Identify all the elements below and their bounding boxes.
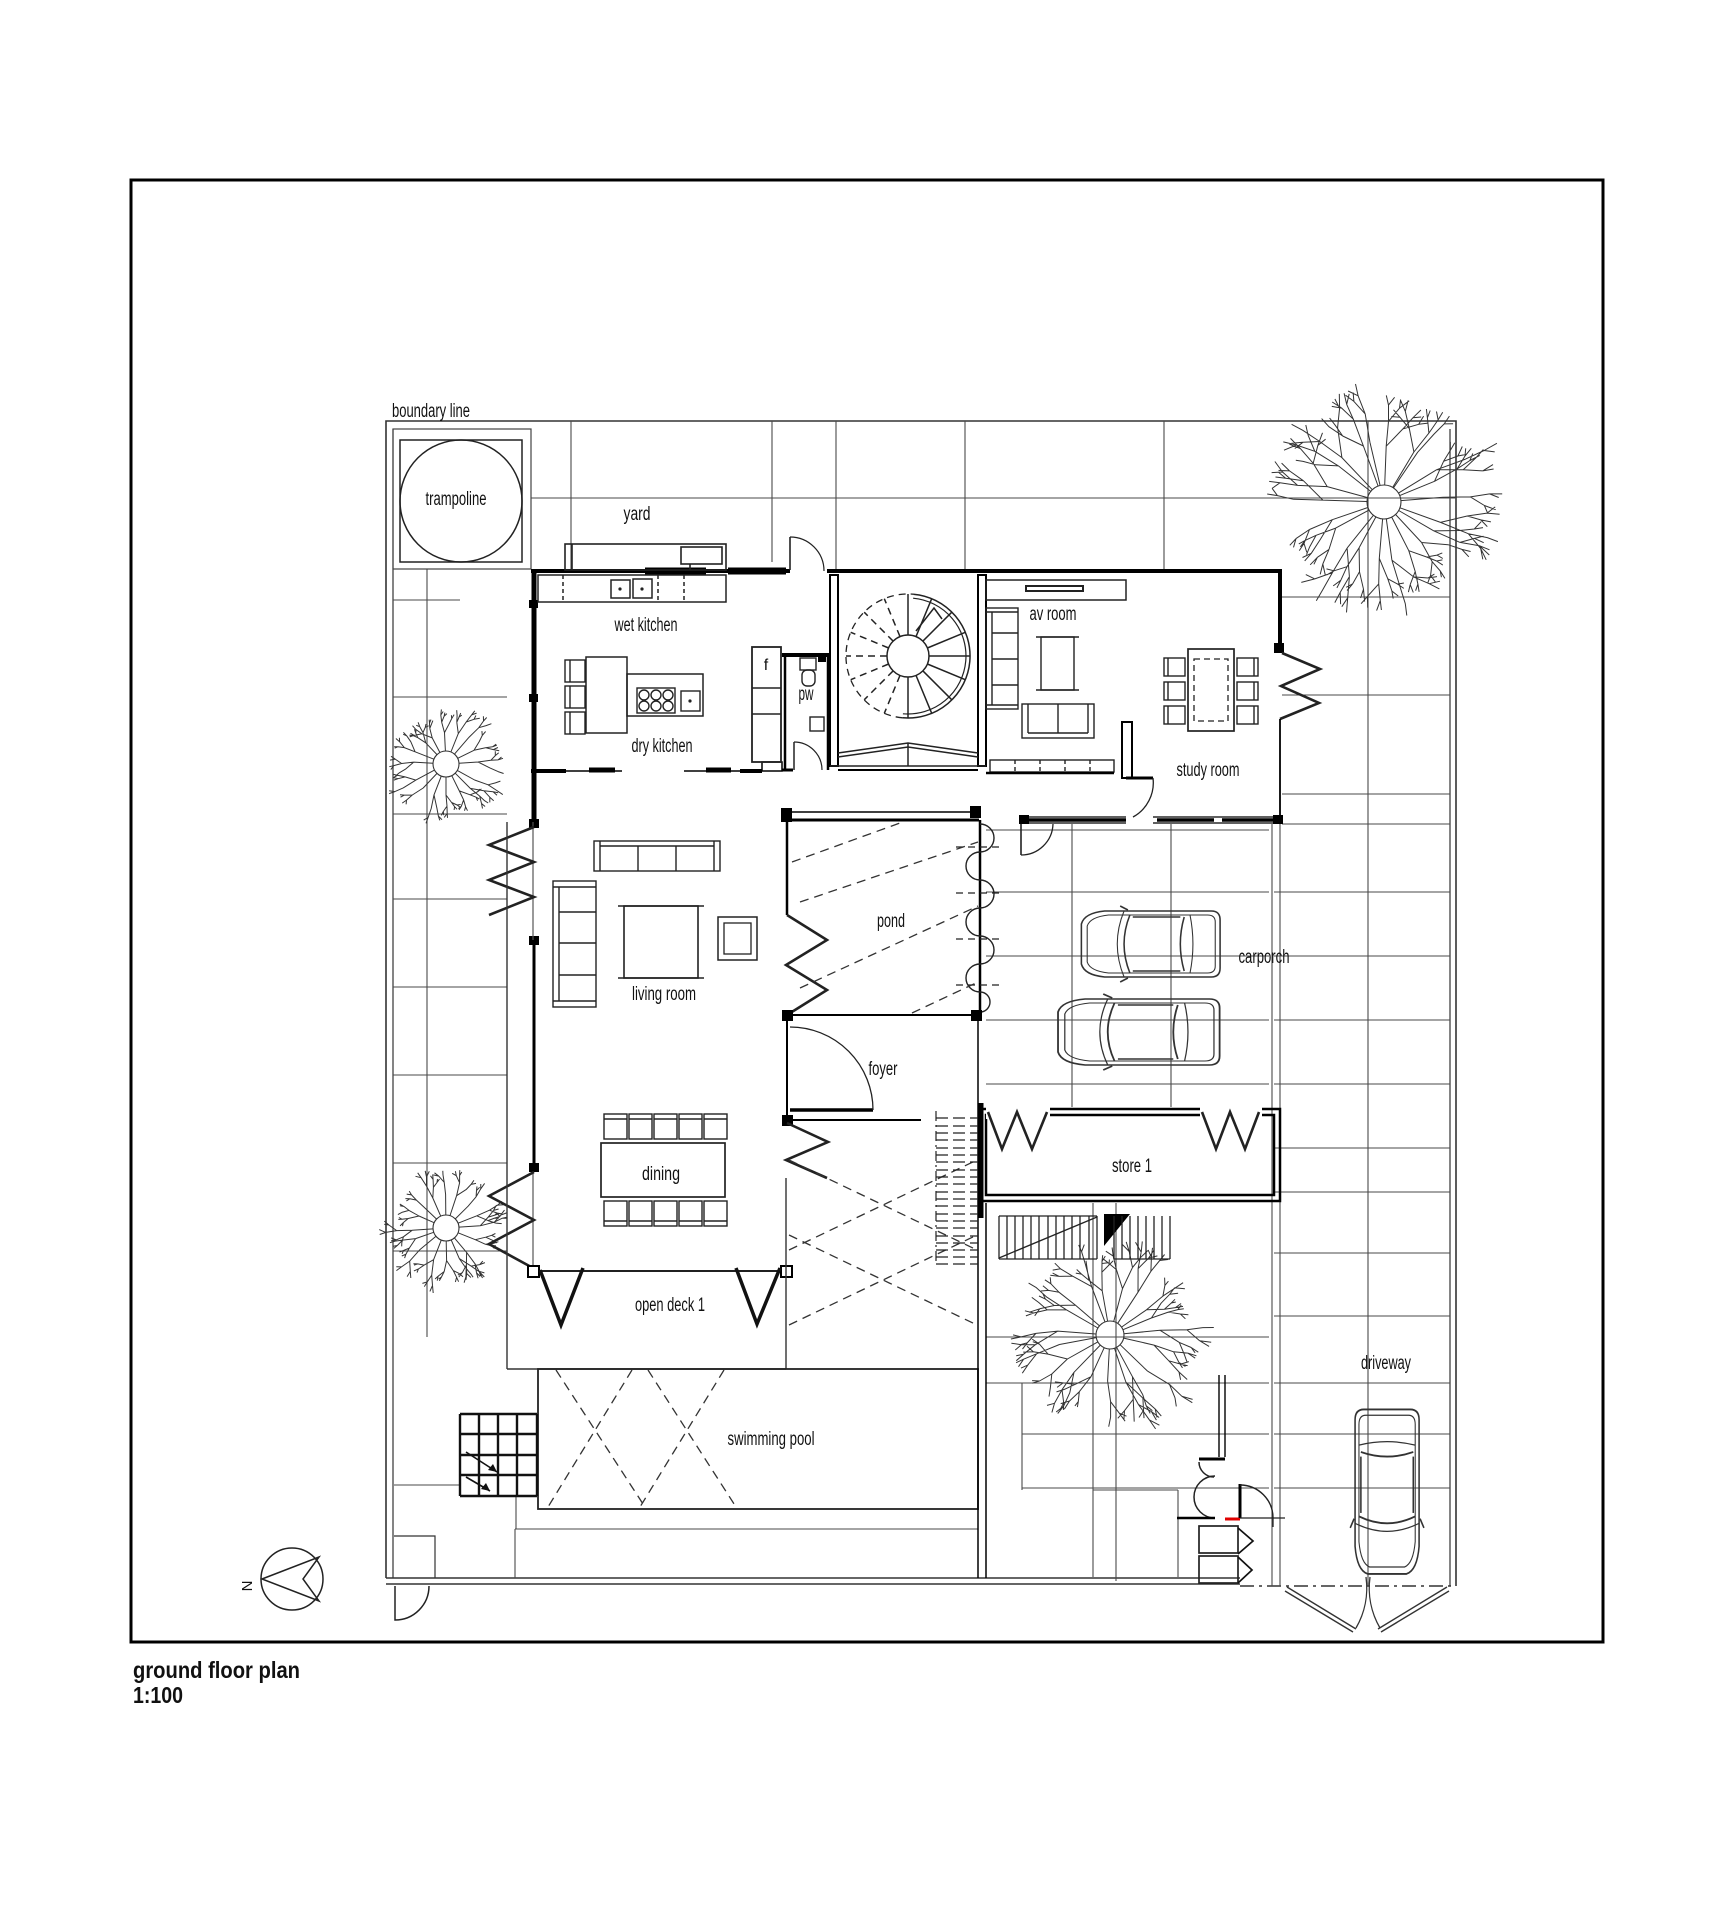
svg-text:wet kitchen: wet kitchen	[614, 615, 678, 636]
svg-text:f: f	[764, 657, 769, 674]
svg-text:dry kitchen: dry kitchen	[632, 736, 693, 757]
svg-text:av room: av room	[1030, 604, 1077, 625]
svg-text:pond: pond	[877, 911, 905, 932]
svg-text:study room: study room	[1177, 760, 1240, 781]
svg-text:N: N	[239, 1581, 256, 1592]
svg-text:yard: yard	[624, 504, 651, 525]
svg-text:foyer: foyer	[869, 1059, 898, 1080]
svg-text:pw: pw	[799, 684, 814, 705]
svg-text:store 1: store 1	[1112, 1156, 1152, 1177]
svg-text:living room: living room	[632, 984, 696, 1005]
svg-text:boundary line: boundary line	[392, 401, 470, 422]
svg-text:driveway: driveway	[1361, 1353, 1411, 1374]
svg-text:swimming pool: swimming pool	[728, 1429, 815, 1450]
svg-text:open deck 1: open deck 1	[635, 1295, 705, 1316]
svg-text:carporch: carporch	[1239, 947, 1290, 968]
svg-text:ground floor plan: ground floor plan	[133, 1657, 300, 1683]
svg-text:1:100: 1:100	[133, 1682, 183, 1708]
svg-text:dining: dining	[642, 1164, 680, 1185]
svg-text:trampoline: trampoline	[426, 489, 487, 510]
